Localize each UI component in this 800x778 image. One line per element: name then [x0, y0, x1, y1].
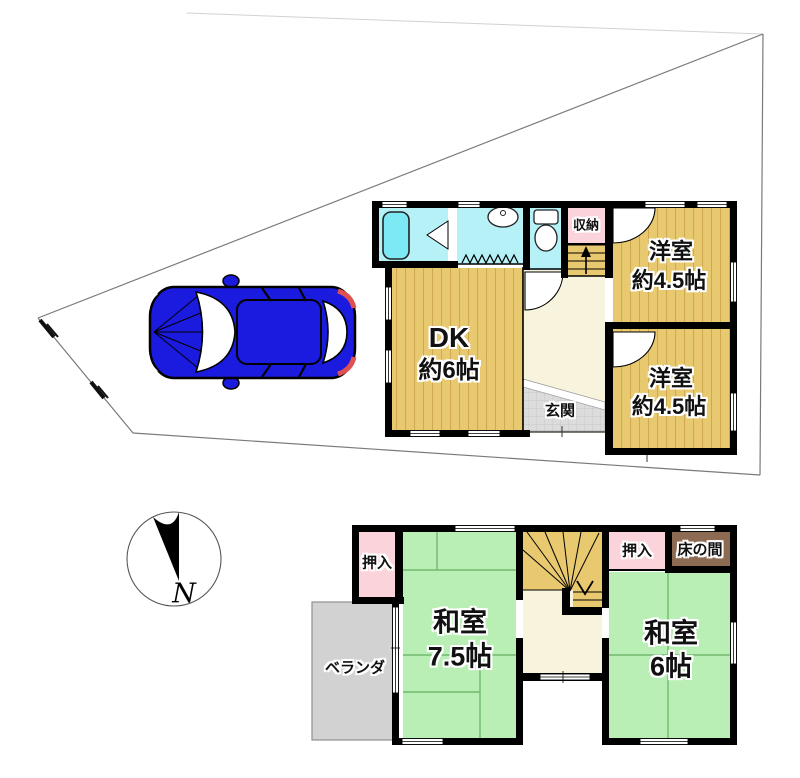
- north-label: N: [172, 579, 196, 610]
- car-roof: [237, 300, 321, 364]
- japanese-room75-label: 和室: [433, 610, 487, 637]
- western-room2-label: 洋室: [649, 368, 693, 390]
- window: [391, 607, 400, 693]
- dk-room-size: 約6帖: [418, 359, 479, 383]
- window: [410, 431, 440, 437]
- car-mirror-icon: [223, 275, 239, 287]
- dk-room-label: DK: [429, 324, 469, 352]
- car: [148, 275, 355, 389]
- window: [640, 739, 688, 745]
- western-room1-size: 約4.5帖: [632, 270, 707, 292]
- japanese-room6-size: 6帖: [650, 654, 692, 681]
- japanese-room75-size: 7.5帖: [428, 644, 493, 671]
- western-room2-size: 約4.5帖: [632, 396, 707, 418]
- bathtub-icon: [383, 212, 409, 259]
- veranda-label: ベランダ: [325, 661, 385, 676]
- window: [697, 202, 727, 208]
- closet-right-label: 押入: [622, 544, 652, 559]
- sink-icon: [488, 207, 518, 227]
- window: [468, 431, 500, 437]
- window: [458, 202, 480, 208]
- stairs2-floor-ext: [573, 590, 602, 607]
- closet-left-label: 押入: [362, 556, 392, 571]
- door-opening: [516, 600, 523, 638]
- window: [386, 350, 392, 383]
- toilet-icon: [534, 210, 558, 251]
- japanese-room6-label: 和室: [644, 621, 698, 648]
- entrance-label: 玄関: [545, 404, 575, 419]
- window: [731, 393, 737, 431]
- window: [731, 262, 737, 302]
- window: [731, 622, 737, 664]
- door-opening: [602, 608, 609, 638]
- western-room1-label: 洋室: [649, 241, 693, 263]
- storage-label: 収納: [573, 219, 599, 232]
- floorplan-canvas: DK 約6帖 洋室 約4.5帖 洋室 約4.5帖 玄関 収納 和室 7.5帖 和…: [0, 0, 800, 778]
- tokonoma-label: 床の間: [677, 543, 722, 558]
- window: [386, 287, 392, 320]
- window: [680, 526, 715, 532]
- window: [645, 202, 685, 208]
- window: [382, 202, 407, 208]
- boundary-tick-marks: [40, 320, 108, 398]
- window: [402, 739, 443, 745]
- window: [455, 526, 515, 532]
